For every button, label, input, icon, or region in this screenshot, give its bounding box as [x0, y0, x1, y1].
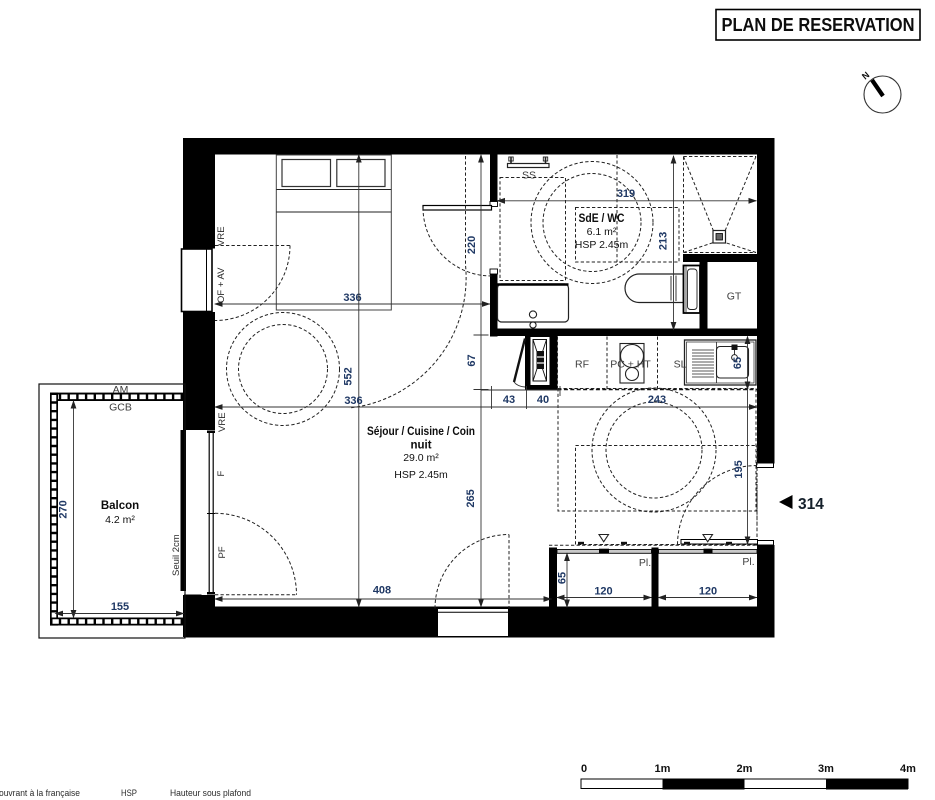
- svg-text:N: N: [860, 70, 871, 82]
- svg-text:VRE: VRE: [217, 412, 228, 432]
- svg-text:43: 43: [503, 394, 515, 406]
- svg-text:PC + HT: PC + HT: [610, 359, 651, 371]
- svg-text:Pl.: Pl.: [742, 556, 754, 568]
- svg-text:65: 65: [732, 357, 744, 369]
- svg-text:195: 195: [733, 460, 745, 478]
- svg-text:270: 270: [58, 500, 70, 518]
- svg-text:HSP: HSP: [121, 788, 137, 799]
- svg-text:336: 336: [344, 395, 362, 407]
- svg-text:F: F: [216, 471, 227, 477]
- svg-text:1m: 1m: [655, 763, 671, 775]
- svg-text:AM: AM: [113, 384, 129, 396]
- svg-text:VRE: VRE: [216, 226, 227, 246]
- svg-text:243: 243: [648, 394, 666, 406]
- svg-text:29.0 m²: 29.0 m²: [403, 452, 439, 464]
- svg-text:PF: PF: [217, 546, 228, 558]
- svg-text:nuit: nuit: [410, 440, 431, 452]
- svg-text:ouvrant à la française: ouvrant à la française: [0, 788, 80, 799]
- svg-text:GT: GT: [727, 291, 742, 303]
- svg-text:6.1 m²: 6.1 m²: [587, 226, 617, 238]
- svg-text:SdE / WC: SdE / WC: [579, 213, 625, 225]
- svg-text:213: 213: [658, 232, 670, 250]
- svg-text:PLAN DE RESERVATION: PLAN DE RESERVATION: [722, 15, 915, 35]
- svg-text:265: 265: [465, 489, 477, 507]
- svg-text:65: 65: [557, 572, 569, 584]
- svg-text:Seuil 2cm: Seuil 2cm: [171, 534, 182, 576]
- svg-text:Séjour / Cuisine / Coin: Séjour / Cuisine / Coin: [367, 426, 475, 438]
- svg-text:120: 120: [594, 586, 612, 598]
- svg-text:SL: SL: [674, 359, 687, 371]
- svg-text:220: 220: [466, 236, 478, 254]
- svg-text:OF + AV: OF + AV: [216, 267, 227, 303]
- svg-text:Hauteur sous plafond: Hauteur sous plafond: [170, 788, 251, 799]
- svg-text:GCB: GCB: [109, 402, 132, 414]
- svg-text:0: 0: [581, 763, 587, 775]
- svg-text:HSP 2.45m: HSP 2.45m: [575, 239, 629, 251]
- svg-text:Balcon: Balcon: [101, 500, 139, 512]
- svg-text:HSP 2.45m: HSP 2.45m: [394, 469, 448, 481]
- svg-text:2m: 2m: [737, 763, 753, 775]
- svg-text:SS: SS: [522, 170, 536, 182]
- svg-text:155: 155: [111, 601, 129, 613]
- svg-text:552: 552: [343, 367, 355, 385]
- svg-text:67: 67: [466, 354, 478, 366]
- svg-text:40: 40: [537, 394, 549, 406]
- svg-text:RF: RF: [575, 359, 589, 371]
- svg-text:Pl.: Pl.: [639, 557, 651, 569]
- svg-text:319: 319: [617, 188, 635, 200]
- svg-text:4.2 m²: 4.2 m²: [105, 514, 135, 526]
- svg-text:314: 314: [798, 496, 824, 513]
- svg-text:4m: 4m: [900, 763, 916, 775]
- svg-text:3m: 3m: [818, 763, 834, 775]
- svg-text:408: 408: [373, 585, 391, 597]
- svg-text:120: 120: [699, 586, 717, 598]
